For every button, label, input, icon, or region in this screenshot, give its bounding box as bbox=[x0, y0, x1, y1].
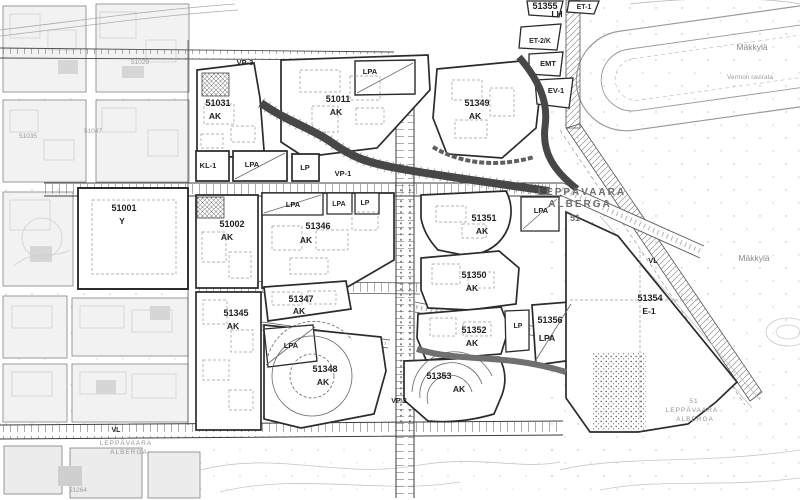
parcel-51354-zone: E-1 bbox=[642, 306, 656, 316]
parcel-51031-zone: AK bbox=[209, 111, 222, 121]
parcel-51351-code: 51351 bbox=[471, 213, 496, 223]
zone-mark-kl1: KL-1 bbox=[200, 161, 217, 170]
parcel-51001-zone: Y bbox=[119, 216, 125, 226]
zone-mark-lp-1: LP bbox=[300, 163, 310, 172]
district-title-sw-2: ALBERGA bbox=[110, 449, 148, 456]
parcel-51347-zone: AK bbox=[293, 306, 306, 316]
parcel-51356-zone: LPA bbox=[539, 333, 555, 343]
parcel-51353-code: 51353 bbox=[426, 371, 451, 381]
zone-mark-lpa-6: LPA bbox=[284, 341, 299, 350]
zone-mark-lpa-2: LPA bbox=[245, 160, 260, 169]
zone-mark-vp1: VP-1 bbox=[335, 169, 352, 178]
parcel-51345-code: 51345 bbox=[223, 308, 248, 318]
district-number: 51 bbox=[570, 213, 580, 223]
parcel-51352-zone: AK bbox=[466, 338, 479, 348]
zone-mark-vp2: VP-2 bbox=[391, 398, 407, 405]
district-title-line2: ALBERGA bbox=[548, 199, 611, 210]
parcel-51011-code: 51011 bbox=[326, 94, 351, 104]
zone-mark-emt: EMT bbox=[540, 59, 556, 68]
parcel-51348-code: 51348 bbox=[312, 364, 337, 374]
parcel-51349-zone: AK bbox=[469, 111, 482, 121]
parcel-51356-code: 51356 bbox=[537, 315, 562, 325]
zone-mark-et1: ET-1 bbox=[577, 4, 592, 11]
district-title-line1: LEPPÄVAARA bbox=[538, 185, 626, 198]
faint-parcel-51029: 51029 bbox=[131, 59, 149, 66]
parcel-51001-code: 51001 bbox=[111, 203, 136, 213]
zoning-map-canvas: 51001 Y 51002 AK 51011 AK 51031 AK 51345… bbox=[0, 0, 800, 500]
zone-mark-vp3: VP-3 bbox=[237, 58, 254, 67]
parcel-51355-zone: LH bbox=[551, 9, 562, 19]
zone-mark-lpa-4: LPA bbox=[332, 201, 345, 208]
district-title-se-1: LEPPÄVAARA bbox=[666, 406, 719, 414]
zoning-map-svg: 51001 Y 51002 AK 51011 AK 51031 AK 51345… bbox=[0, 0, 800, 500]
parcel-51346-code: 51346 bbox=[305, 221, 330, 231]
zone-mark-lpa-5: LPA bbox=[534, 206, 549, 215]
parcel-51352-code: 51352 bbox=[461, 325, 486, 335]
zone-mark-vl-2: VL bbox=[112, 427, 122, 434]
district-number-se: 51 bbox=[689, 398, 698, 405]
parcel-51353-zone: AK bbox=[453, 384, 466, 394]
faint-parcel-51264: 51264 bbox=[69, 487, 87, 494]
faint-parcel-51047: 51047 bbox=[84, 128, 102, 135]
zone-mark-lp-3: LP bbox=[514, 323, 523, 330]
zone-mark-vl-1: VL bbox=[648, 256, 658, 265]
stipple-area bbox=[592, 352, 646, 432]
parcel-51354-code: 51354 bbox=[637, 293, 662, 303]
district-title-se-2: ALBERGA bbox=[676, 416, 714, 423]
faint-parcel-51035: 51035 bbox=[19, 133, 37, 140]
parcel-51348-zone: AK bbox=[317, 377, 330, 387]
parcel-51350-code: 51350 bbox=[461, 270, 486, 280]
parcel-51347-code: 51347 bbox=[288, 294, 313, 304]
district-title-sw-1: LEPPÄVAARA bbox=[100, 439, 153, 447]
zone-mark-lpa-3: LPA bbox=[286, 200, 301, 209]
place-makkyla-east: Mäkkylä bbox=[738, 253, 769, 263]
place-vermon-ravirata: Vermon ravirata bbox=[727, 74, 773, 81]
parcel-51002-zone: AK bbox=[221, 232, 234, 242]
parcel-51002-code: 51002 bbox=[219, 219, 244, 229]
parcel-51351-zone: AK bbox=[476, 226, 489, 236]
parcel-51346-zone: AK bbox=[300, 235, 313, 245]
zone-mark-et2k: ET-2/K bbox=[529, 38, 551, 45]
parcel-51011-zone: AK bbox=[330, 107, 343, 117]
zone-mark-lpa-1: LPA bbox=[363, 67, 378, 76]
zone-mark-lp-2: LP bbox=[361, 200, 370, 207]
parcel-51350-zone: AK bbox=[466, 283, 479, 293]
place-makkyla-north: Mäkkylä bbox=[736, 42, 767, 52]
zone-mark-ev1: EV-1 bbox=[548, 86, 564, 95]
parcel-51349-code: 51349 bbox=[464, 98, 489, 108]
parcel-51031-code: 51031 bbox=[205, 98, 230, 108]
parcel-51345-zone: AK bbox=[227, 321, 240, 331]
